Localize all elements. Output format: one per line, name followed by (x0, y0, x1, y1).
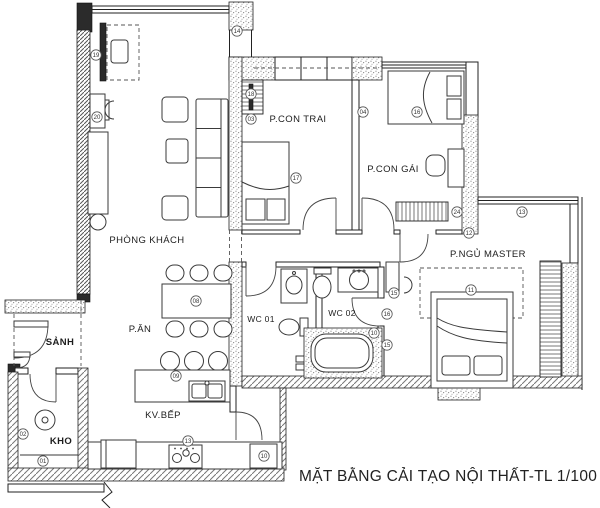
wall-master-right (562, 263, 578, 377)
label-master-bedroom: P.NGỦ MASTER (450, 248, 526, 260)
door-wc1 (246, 266, 276, 296)
svg-text:18: 18 (248, 92, 255, 98)
wall-kitchen-door-top (230, 386, 236, 412)
wall-hall-column-top (229, 57, 242, 230)
closet-boy-top (275, 57, 352, 80)
svg-text:13: 13 (185, 439, 192, 445)
dining-chair (214, 265, 232, 281)
kitchen-sink (189, 381, 225, 401)
bar-stool (161, 352, 180, 371)
bed-boy (242, 142, 289, 224)
dining-chair (214, 321, 232, 337)
svg-text:13: 13 (519, 210, 526, 216)
floor-plan-page: PHÒNG KHÁCH P.CON TRAI P.CON GÁI (0, 0, 600, 508)
sofa (196, 99, 228, 217)
cabinet (88, 132, 108, 214)
callout-19: 19 (91, 50, 101, 60)
callout-18: 18 (246, 89, 256, 99)
svg-text:08: 08 (193, 299, 200, 305)
label-storage: KHO (50, 436, 72, 447)
fridge (101, 440, 136, 468)
bed-girl (388, 71, 464, 124)
desk-girl (448, 149, 464, 187)
floor-plan: PHÒNG KHÁCH P.CON TRAI P.CON GÁI (0, 0, 600, 508)
svg-text:16: 16 (384, 312, 391, 318)
room-dining: P.ĂN (129, 265, 232, 371)
door-boy-bedroom (303, 198, 336, 230)
callout-03: 03 (246, 114, 256, 124)
wall-bedrooms-south-3 (394, 230, 400, 234)
callout-20: 20 (92, 112, 102, 122)
label-living: PHÒNG KHÁCH (109, 235, 184, 246)
label-boy-bedroom: P.CON TRAI (270, 114, 327, 125)
door-girl-bedroom (362, 198, 394, 230)
callout-08: 08 (191, 296, 201, 306)
washing-machine (35, 410, 55, 430)
callout-12: 12 (464, 228, 474, 238)
svg-text:10: 10 (261, 454, 268, 460)
bed-master (431, 292, 513, 388)
room-girl-bedroom: P.CON GÁI (367, 71, 464, 221)
coffee-seat-2 (162, 196, 188, 220)
callout-13: 13 (517, 207, 527, 217)
dressing-table (386, 262, 412, 293)
wall-hall-column-bottom (229, 262, 242, 386)
door-master-bedroom (400, 234, 428, 262)
door-entry (14, 321, 48, 368)
callout-15a: 15 (389, 288, 399, 298)
door-kitchen (236, 412, 262, 440)
callout-04: 04 (358, 107, 368, 117)
coffee-table (166, 139, 188, 163)
svg-text:19: 19 (93, 53, 100, 59)
callout-16b: 16 (382, 309, 392, 319)
wall-wc2-right-1 (378, 267, 384, 298)
svg-text:11: 11 (468, 288, 475, 294)
wall-corner-living-right (229, 2, 253, 30)
door-wc2 (352, 298, 380, 326)
callout-10a: 10 (369, 328, 379, 338)
wall-bedrooms-south-4 (436, 230, 462, 234)
svg-text:02: 02 (20, 432, 27, 438)
dining-chair (190, 321, 208, 337)
callout-09: 09 (171, 371, 181, 381)
wall-bottom-outer (8, 484, 104, 492)
dining-chair (166, 265, 184, 281)
tv-unit (100, 23, 106, 81)
wall-block-boy-right (352, 57, 382, 80)
wall-boy-girl (352, 80, 359, 230)
wall-bedrooms-south-1 (242, 230, 300, 234)
wall-master-right-top (570, 197, 578, 263)
wall-girl-right-top (466, 62, 478, 117)
svg-text:15: 15 (391, 291, 398, 297)
stove (169, 445, 202, 468)
side-table (90, 94, 105, 128)
callout-01: 01 (38, 456, 48, 466)
toilet-wc2 (313, 268, 331, 298)
callout-14: 14 (232, 26, 242, 36)
door-storage (30, 374, 56, 402)
room-boy-bedroom: P.CON TRAI (242, 80, 326, 224)
svg-text:20: 20 (94, 115, 101, 121)
callout-16: 16 (412, 107, 422, 117)
wall-wc-top-2 (276, 262, 380, 267)
room-hall: SẢNH (46, 336, 75, 348)
wall-kho-top-2 (56, 368, 78, 374)
room-master-bedroom: P.NGỦ MASTER (386, 248, 526, 388)
label-wc1: WC 01 (247, 314, 274, 324)
callout-02: 02 (18, 429, 28, 439)
vanity-wc1 (281, 269, 307, 303)
callout-24: 24 (452, 207, 462, 217)
svg-text:04: 04 (360, 110, 367, 116)
callout-17: 17 (291, 173, 301, 183)
wall-hall-top-band (5, 300, 85, 313)
svg-text:15: 15 (384, 343, 391, 349)
coffee-seat-1 (162, 97, 188, 122)
label-wc2: WC 02 (328, 308, 355, 318)
dining-chair (190, 265, 208, 281)
wall-south-band (242, 376, 582, 388)
wall-bottom-band (8, 468, 284, 481)
callout-13b: 13 (183, 436, 193, 446)
wall-kho-left (8, 372, 18, 470)
doors (14, 198, 428, 440)
wardrobe-master (540, 261, 561, 377)
svg-text:09: 09 (173, 374, 180, 380)
tv-screen (111, 40, 128, 63)
wall-wc-top-1 (242, 262, 246, 267)
callout-10b: 10 (259, 451, 269, 461)
shelf-girl (396, 202, 448, 221)
svg-text:16: 16 (414, 110, 421, 116)
armchair (105, 100, 114, 120)
dining-chair (166, 321, 184, 337)
stool-living (90, 214, 106, 230)
label-kitchen: KV.BẾP (145, 410, 181, 421)
label-girl-bedroom: P.CON GÁI (367, 164, 418, 175)
svg-text:14: 14 (234, 29, 241, 35)
room-storage: KHO (20, 410, 78, 455)
room-living: PHÒNG KHÁCH (88, 23, 228, 246)
plan-title: MẶT BẰNG CẢI TẠO NỘI THẤT-TL 1/100 (299, 467, 597, 485)
label-hall: SẢNH (46, 336, 75, 348)
bar-stool (209, 352, 228, 371)
chair-girl (426, 155, 445, 176)
wall-bedrooms-south-2 (336, 230, 362, 234)
label-dining: P.ĂN (129, 324, 152, 335)
callout-11: 11 (466, 285, 476, 295)
svg-text:10: 10 (371, 331, 378, 337)
svg-text:24: 24 (454, 210, 461, 216)
wall-block-below-master (438, 388, 480, 400)
room-wc1: WC 01 (247, 269, 308, 370)
bar-stool (185, 352, 204, 371)
callout-15b: 15 (382, 340, 392, 350)
svg-text:03: 03 (248, 117, 255, 123)
svg-text:17: 17 (293, 176, 300, 182)
wall-kho-right (78, 368, 88, 470)
svg-text:01: 01 (40, 459, 47, 465)
wall-corner-topleft (77, 3, 92, 32)
sink-wc2 (338, 268, 378, 292)
svg-text:12: 12 (466, 231, 473, 237)
